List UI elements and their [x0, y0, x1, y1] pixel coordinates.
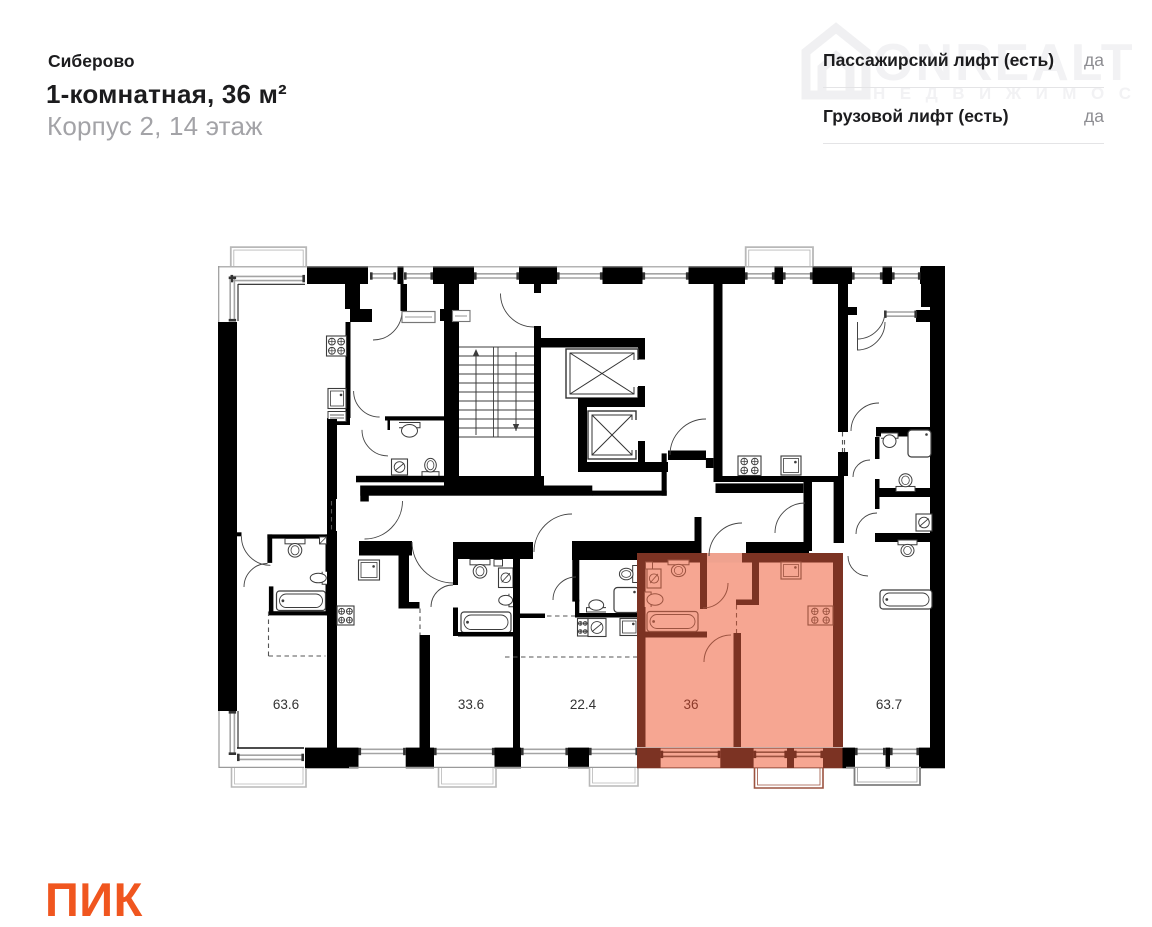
- svg-text:63.7: 63.7: [876, 697, 902, 712]
- svg-text:22.4: 22.4: [570, 697, 597, 712]
- svg-text:33.6: 33.6: [458, 697, 484, 712]
- svg-text:36: 36: [683, 697, 698, 712]
- svg-text:63.6: 63.6: [273, 697, 299, 712]
